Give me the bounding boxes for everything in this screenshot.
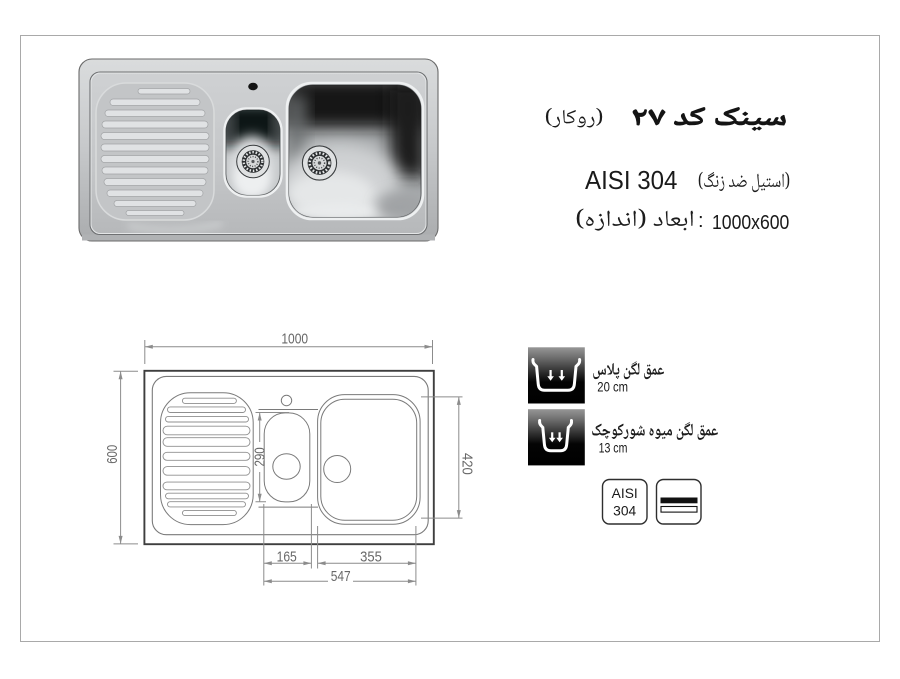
svg-text:20 cm: 20 cm (597, 378, 628, 394)
svg-text:1000x600: 1000x600 (712, 211, 789, 234)
svg-text:165: 165 (277, 549, 297, 566)
svg-text:1000: 1000 (281, 330, 308, 347)
svg-text::: : (698, 210, 704, 232)
svg-text:AISI: AISI (612, 486, 638, 501)
svg-text:600: 600 (104, 445, 121, 464)
svg-text:AISI 304: AISI 304 (585, 165, 677, 195)
svg-text:13 cm: 13 cm (599, 440, 628, 456)
svg-text:420: 420 (458, 453, 475, 475)
svg-text:547: 547 (331, 568, 351, 585)
svg-text:304: 304 (613, 504, 636, 519)
svg-text:355: 355 (360, 549, 382, 566)
svg-text:290: 290 (252, 447, 269, 466)
